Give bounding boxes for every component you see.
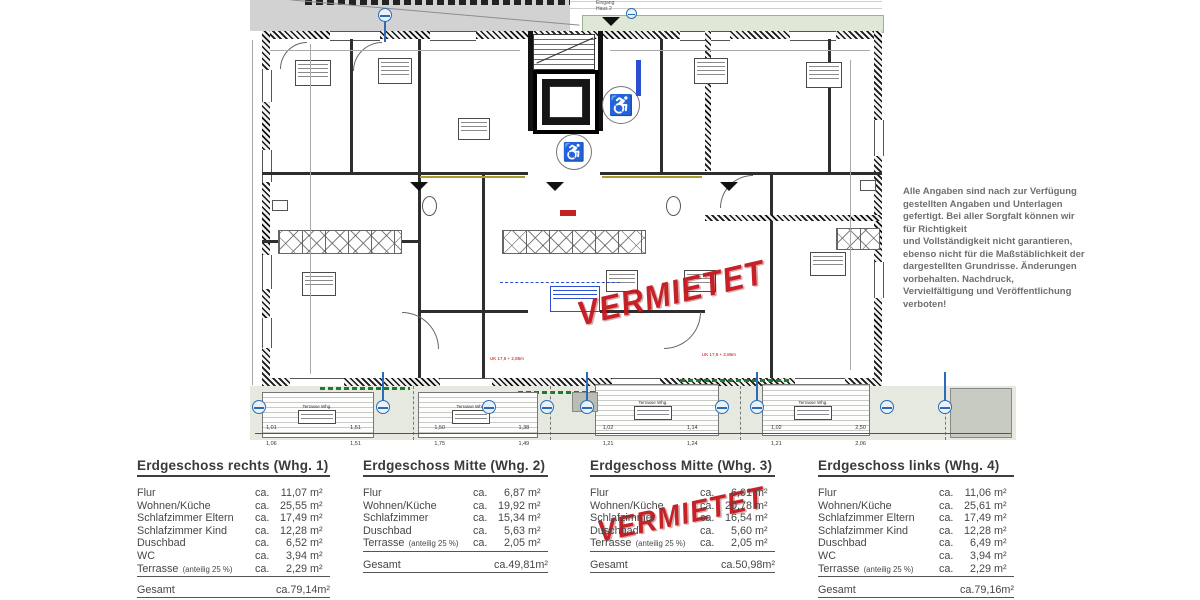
blue-marker-icon [252,400,266,414]
level-marker-icon [546,182,564,191]
room-label-box [378,58,412,84]
area-table-whg-3: Erdgeschoss Mitte (Whg. 3) Flurca.6,01m²… [590,458,775,573]
sink-fixture [272,200,288,211]
level-marker-icon [410,182,428,191]
room-label-box [295,60,331,86]
dimension-value: 1,38 [519,425,530,431]
window [262,150,272,182]
boundary-dashed [740,386,741,440]
window [430,31,476,41]
exterior-wall-right [874,31,882,386]
table-total-row: Gesamtca.79,16m² [818,584,1014,598]
table-row: Schlafzimmer Kindca.12,28m² [818,525,1014,538]
dimension-value: 1,14 [687,425,698,431]
interior-wall [660,39,663,172]
wheelchair-icon: ♿ [556,134,592,170]
kitchen-counter [502,230,646,254]
table-rows: Flurca.6,87m²Wohnen/Kücheca.19,92m²Schla… [363,487,548,573]
table-row: Flurca.6,01m² [590,487,775,500]
interior-wall [482,172,485,378]
red-annotation: UK 17,5 + 2,86m [702,353,736,358]
terrace-label-box: Terrasse Whg. [292,404,342,424]
blue-marker-icon [938,400,952,414]
dimension-value: 1,02 [771,425,782,431]
masonry-area [570,0,882,15]
blue-marker-icon [376,400,390,414]
dimension-value: 1,51 [350,441,361,447]
dimension-value: 1,24 [687,441,698,447]
table-row: Schlafzimmer Elternca.17,49m² [818,512,1014,525]
window [874,120,884,156]
kitchen-counter [278,230,402,254]
floorplan-page: Eingang Haus 2 [0,0,1200,600]
window [330,31,380,41]
boundary-dashed [413,386,414,440]
interior-wall [350,39,353,172]
dimension-value: 2,50 [855,425,866,431]
blue-marker-icon [378,8,392,22]
area-table-whg-4: Erdgeschoss links (Whg. 4) Flurca.11,06m… [818,458,1014,598]
blue-dashed-line [500,282,620,283]
terrace-value-box [634,406,672,420]
table-row: Schlafzimmerca.16,54m² [590,512,775,525]
pipe-line [382,372,384,402]
table-row: Duschbadca.6,49m² [818,537,1014,550]
terrace-value-box [794,406,832,420]
wheelchair-icon: ♿ [602,86,640,124]
dimension-line [270,50,520,51]
insulation-line [420,176,525,178]
room-label-box [694,58,728,84]
dimension-value: 1,50 [434,425,445,431]
terrace-label: Terrasse Whg. [788,400,838,405]
wc-fixture [422,196,437,216]
blue-marker-icon [750,400,764,414]
dimension-line [850,60,851,370]
blue-marker-icon [715,400,729,414]
dimension-line [252,40,253,385]
terrace-label-box: Terrasse Whg. [788,400,838,420]
table-rows: Flurca.11,06m²Wohnen/Kücheca.25,61m²Schl… [818,487,1014,598]
pipe-line [756,372,758,402]
table-row: Schlafzimmer Kindca.12,28m² [137,525,330,538]
dimension-value: 1,02 [603,425,614,431]
interior-wall [418,310,528,313]
table-row: Terrasse (anteilig 25 %)ca.2,29m² [818,563,1014,578]
window [262,318,272,348]
blue-bar [636,60,641,96]
dimension-value: 1,21 [771,441,782,447]
blue-marker-icon [580,400,594,414]
insulation-line [602,176,702,178]
table-title: Erdgeschoss Mitte (Whg. 2) [363,458,548,477]
dimension-value: 1,49 [519,441,530,447]
blue-marker-icon [880,400,894,414]
entrance-arrow-icon [602,17,620,26]
window [262,255,272,289]
table-row: Wohnen/Kücheca.20,78m² [590,500,775,513]
table-row: Terrasse (anteilig 25 %)ca.2,29m² [137,563,330,578]
room-label-box [458,118,490,140]
pipe-line [384,20,386,42]
table-row: Duschbadca.6,52m² [137,537,330,550]
table-row: Wohnen/Kücheca.25,55m² [137,500,330,513]
terrace-value-box [298,410,336,424]
table-row: Wohnen/Kücheca.25,61m² [818,500,1014,513]
window [874,262,884,298]
table-row: Schlafzimmerca.15,34m² [363,512,548,525]
pipe-line [944,372,946,402]
area-table-whg-1: Erdgeschoss rechts (Whg. 1) Flurca.11,07… [137,458,330,598]
table-row: WCca.3,94m² [818,550,1014,563]
table-row: Wohnen/Kücheca.19,92m² [363,500,548,513]
blue-marker-icon [482,400,496,414]
table-row: Flurca.6,87m² [363,487,548,500]
dimension-chain [255,433,1011,434]
interior-wall [705,215,882,221]
elevator [533,70,599,134]
terrace-label-box: Terrasse Whg. [628,400,678,420]
interior-wall [262,172,528,175]
red-annotation: UK 17,5 + 2,86m [490,357,524,362]
room-label-box [806,62,842,88]
table-title: Erdgeschoss Mitte (Whg. 3) [590,458,775,477]
dimension-value: 1,21 [603,441,614,447]
room-label-box [810,252,846,276]
table-row: Schlafzimmer Elternca.17,49m² [137,512,330,525]
sink-fixture [860,180,876,191]
wc-fixture [666,196,681,216]
table-rows: Flurca.6,01m²Wohnen/Kücheca.20,78m²Schla… [590,487,775,573]
table-total-row: Gesamtca.49,81m² [363,559,548,573]
area-table-whg-2: Erdgeschoss Mitte (Whg. 2) Flurca.6,87m²… [363,458,548,573]
red-mark [560,210,576,216]
table-total-row: Gesamtca.50,98m² [590,559,775,573]
table-total-row: Gesamtca.79,14m² [137,584,330,598]
interior-wall [705,31,711,171]
dimension-value: 1,75 [434,441,445,447]
window [262,70,272,102]
interior-wall [600,172,882,175]
table-rows: Flurca.11,07m²Wohnen/Kücheca.25,55m²Schl… [137,487,330,598]
table-row: Terrasse (anteilig 25 %)ca.2,05m² [363,537,548,552]
table-title: Erdgeschoss links (Whg. 4) [818,458,1014,477]
dimension-value: 1,06 [266,441,277,447]
level-marker-icon [720,182,738,191]
dimension-line [310,44,311,374]
table-row: Flurca.11,06m² [818,487,1014,500]
dimension-line [610,50,870,51]
dimension-value: 2,06 [855,441,866,447]
utility-box [950,388,1012,438]
dimension-value: 1,01 [266,425,277,431]
pipe-line [586,372,588,402]
entrance-label: Eingang Haus 2 [596,1,614,13]
terrace-label: Terrasse Whg. [628,400,678,405]
green-dashed-strip [680,379,792,382]
terrace-label: Terrasse Whg. [292,404,342,409]
table-row: Flurca.11,07m² [137,487,330,500]
disclaimer-text: Alle Angaben sind nach zur Verfügung ges… [903,186,1085,311]
blue-marker-icon [540,400,554,414]
table-row: Duschbadca.5,63m² [363,525,548,538]
dimension-values-row: 1,011,511,501,381,021,141,022,50 [266,425,866,431]
kitchen-counter [836,228,880,250]
table-row: Duschbadca.5,60m² [590,525,775,538]
entrance-marker-icon [626,8,637,19]
interior-wall [770,172,773,378]
dimension-values-row: 1,061,511,751,491,211,241,212,06 [266,441,866,447]
table-row: Terrasse (anteilig 25 %)ca.2,05m² [590,537,775,552]
dimension-value: 1,51 [350,425,361,431]
table-row: WCca.3,94m² [137,550,330,563]
room-label-box [302,272,336,296]
table-title: Erdgeschoss rechts (Whg. 1) [137,458,330,477]
green-dashed-strip [320,387,410,390]
interior-wall [828,39,831,172]
